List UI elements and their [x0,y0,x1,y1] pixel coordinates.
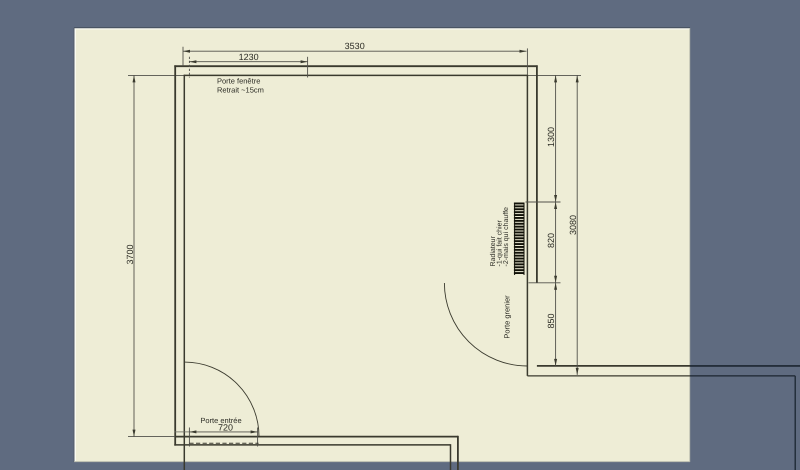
svg-text:3080: 3080 [568,215,578,235]
svg-text:1230: 1230 [239,52,259,62]
svg-text:820: 820 [546,233,556,248]
svg-text:Porte entrée: Porte entrée [200,416,241,425]
svg-text:850: 850 [546,313,556,328]
svg-text:-2-mais qui chauffe: -2-mais qui chauffe [502,207,510,267]
svg-text:Porte grenier: Porte grenier [503,295,512,339]
svg-text:3700: 3700 [125,244,135,264]
svg-text:3530: 3530 [345,41,365,51]
svg-text:Retrait ~15cm: Retrait ~15cm [217,85,264,94]
svg-text:Porte fenêtre: Porte fenêtre [217,76,260,85]
svg-text:1300: 1300 [546,127,556,147]
